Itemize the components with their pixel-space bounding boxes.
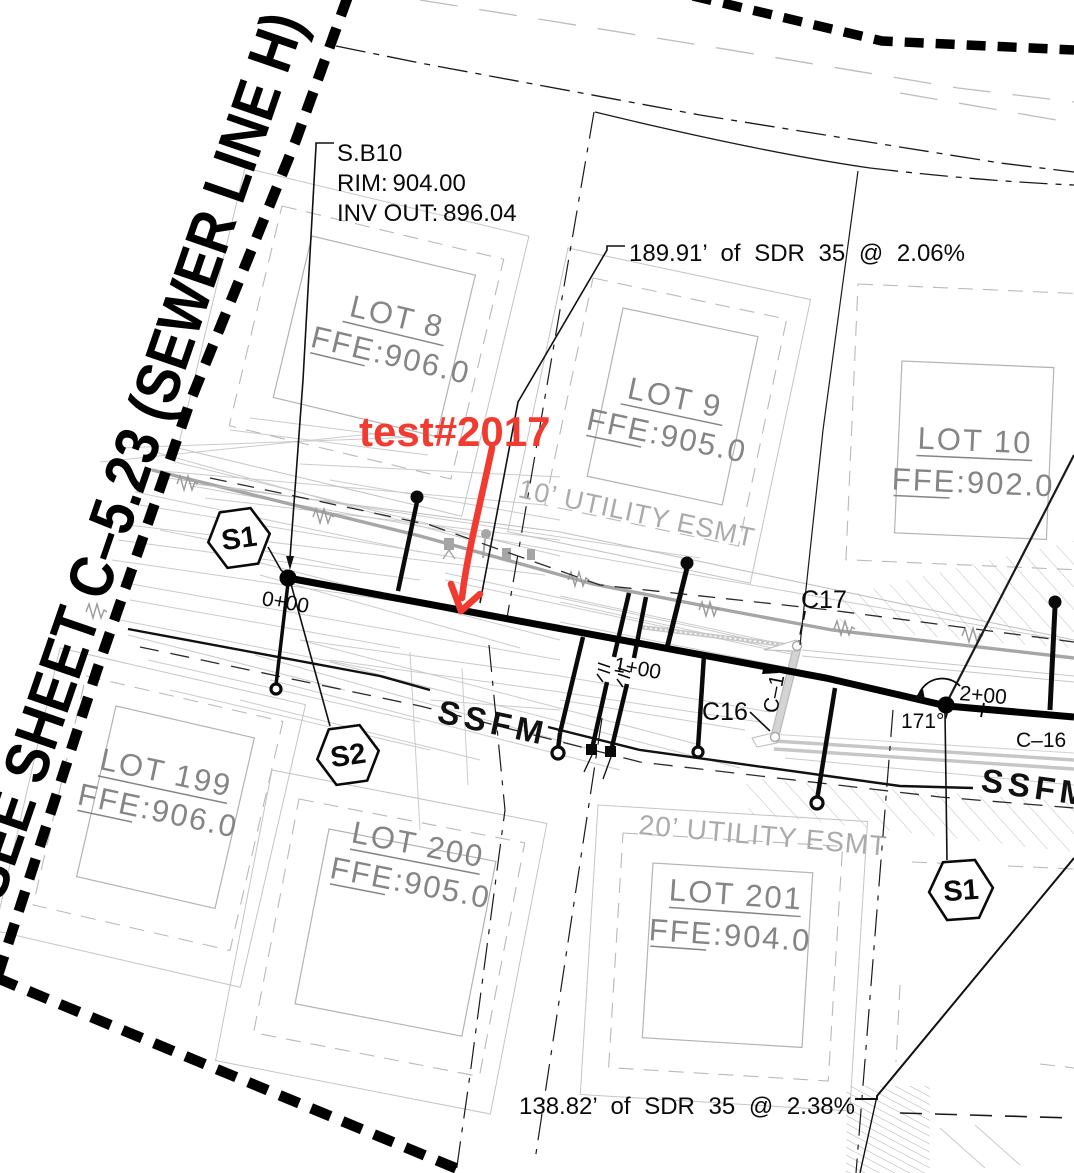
svg-text:C–16: C–16 [1016, 729, 1066, 752]
svg-text:S1: S1 [942, 874, 980, 908]
svg-text:S1: S1 [219, 521, 259, 558]
svg-text:S.B10: S.B10 [337, 140, 402, 167]
svg-text:RIM: 904.00: RIM: 904.00 [337, 170, 466, 197]
svg-text:2+00: 2+00 [959, 682, 1008, 709]
svg-text:LOT 10: LOT 10 [917, 421, 1033, 461]
svg-text:test#2017: test#2017 [359, 408, 550, 455]
svg-text:INV OUT: 896.04: INV OUT: 896.04 [337, 200, 517, 227]
svg-text:138.82’ of SDR 35 @ 2.38%: 138.82’ of SDR 35 @ 2.38% [519, 1093, 855, 1120]
svg-text:C16: C16 [702, 698, 748, 726]
svg-text:189.91’ of SDR 35 @ 2.06%: 189.91’ of SDR 35 @ 2.06% [629, 240, 965, 267]
svg-text:C17: C17 [801, 586, 847, 614]
svg-text:171°′: 171°′ [901, 710, 948, 733]
svg-text:S2: S2 [328, 738, 368, 775]
